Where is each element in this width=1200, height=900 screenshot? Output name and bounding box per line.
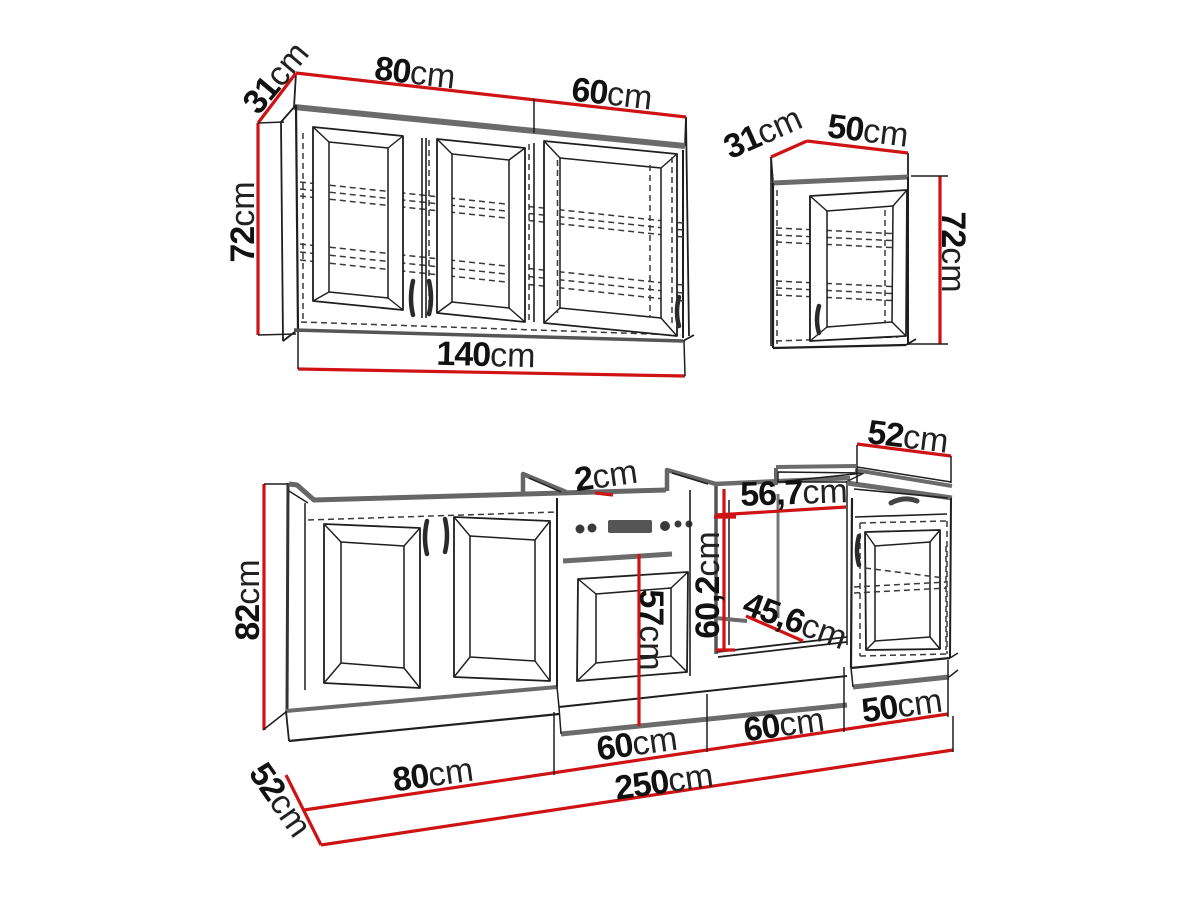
svg-text:140cm: 140cm	[436, 335, 536, 376]
svg-text:57cm: 57cm	[632, 589, 670, 670]
svg-text:82cm: 82cm	[229, 559, 267, 640]
svg-text:72cm: 72cm	[224, 181, 262, 262]
svg-text:60,2cm: 60,2cm	[689, 531, 727, 639]
svg-text:72cm: 72cm	[934, 211, 972, 292]
svg-text:56,7cm: 56,7cm	[740, 472, 849, 514]
